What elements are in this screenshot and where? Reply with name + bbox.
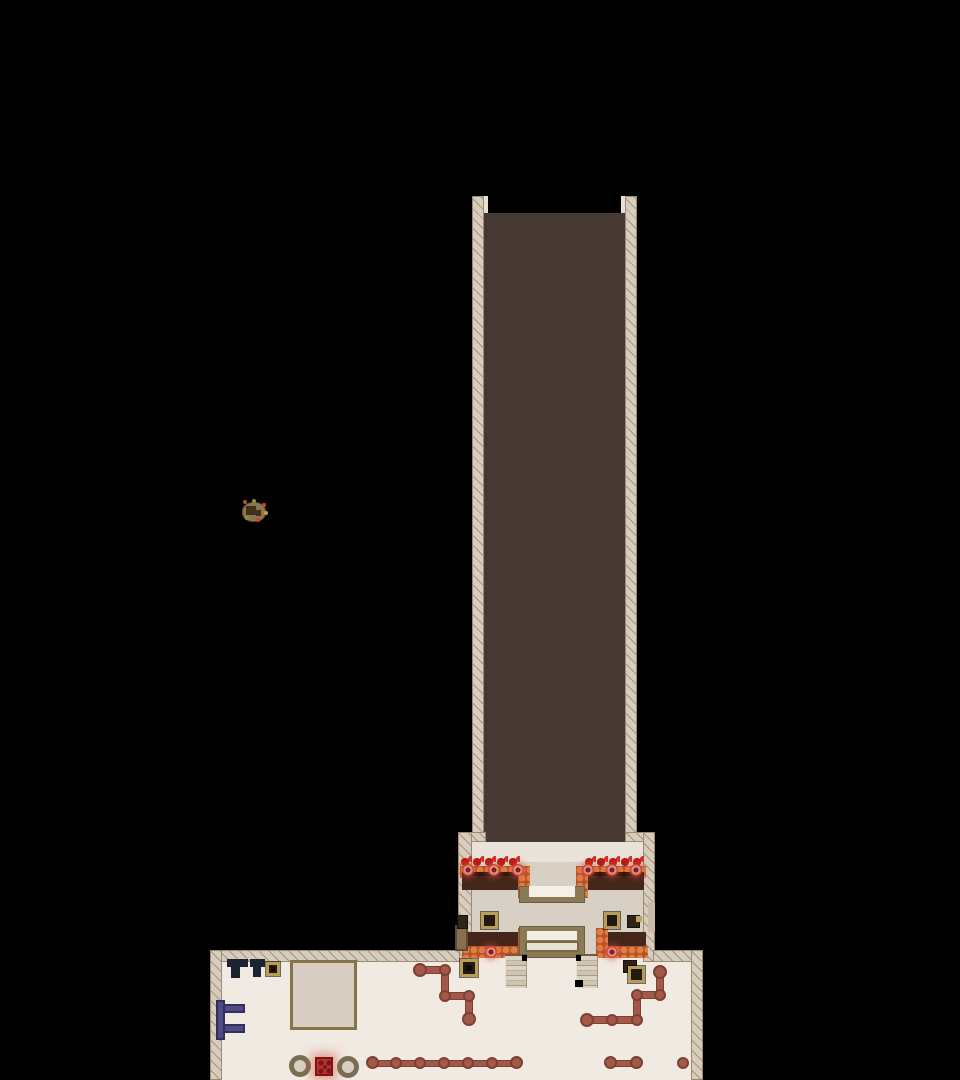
planter-bl-medallion: [485, 946, 497, 958]
garden-islet-box-2: [256, 510, 261, 516]
map-canvas: [0, 0, 960, 1080]
pipe-bottom-joint-4: [462, 1057, 474, 1069]
crate-hall-top-dot: [271, 967, 275, 971]
reception-desk-counter: [525, 941, 579, 952]
planter-tr-medallion-1: [582, 864, 594, 876]
pipe-zigzag-cap-2: [462, 1012, 476, 1026]
pipe-bottom-cap-2: [510, 1056, 523, 1069]
garden-islet-dot-4: [264, 511, 268, 515]
garden-islet-box: [246, 506, 256, 515]
table-1-leg: [231, 967, 240, 978]
stairs-left-shadow: [522, 955, 527, 961]
garden-islet-dot-6: [245, 516, 249, 520]
crate-hall-left-dot: [466, 965, 472, 971]
hall-right-wall: [691, 950, 703, 1080]
pipe-right-joint-1: [606, 1014, 618, 1026]
pot-right[interactable]: [337, 1056, 359, 1078]
floor-platform: [290, 960, 357, 1030]
garden-islet-dot-5: [256, 518, 260, 522]
corridor-left-wall-cap: [484, 196, 488, 213]
pipe-zigzag-joint-2: [439, 990, 451, 1002]
reception-desk-top: [527, 931, 577, 940]
wall-rack-arm-top: [223, 1004, 245, 1013]
table-1-top: [227, 959, 248, 967]
pipe-bottom-joint-3: [438, 1057, 450, 1069]
pipe-right-joint-4: [654, 989, 666, 1001]
pipe-zigzag-joint-1: [439, 964, 451, 976]
crate-lobby-left[interactable]: [481, 912, 498, 929]
corridor-right-wall: [625, 196, 637, 842]
pipe-zigzag-cap-1: [413, 963, 427, 977]
garden-islet-dot-3: [262, 503, 266, 507]
pipe-bottom-cap-1: [366, 1056, 379, 1069]
crate-hall-right[interactable]: [628, 966, 645, 983]
planter-tr-medallion-3: [630, 864, 642, 876]
garden-islet-dot-1: [243, 500, 247, 504]
planter-tl-medallion-1: [462, 864, 474, 876]
pipe-right-joint-2: [631, 1014, 643, 1026]
pipe-short-cap-2: [630, 1056, 643, 1069]
stairs-right-shadow: [576, 955, 581, 961]
pipe-right-cap-2: [653, 965, 667, 979]
lobby-right-wall-niche: [648, 902, 655, 932]
table-2-top: [250, 959, 265, 967]
planter-tr-medallion-2: [606, 864, 618, 876]
crate-lobby-right[interactable]: [604, 912, 620, 929]
planter-tl-medallion-3: [512, 864, 524, 876]
planter-tl-medallion-2: [488, 864, 500, 876]
garden-islet-dot-2: [252, 499, 256, 503]
pipe-zigzag-joint-3: [463, 990, 475, 1002]
corridor-right-wall-cap: [621, 196, 625, 213]
pipe-bottom-joint-2: [414, 1057, 426, 1069]
pipe-short-cap-1: [604, 1056, 617, 1069]
hazard-box[interactable]: [315, 1057, 333, 1076]
planter-br-medallion: [606, 946, 618, 958]
pot-left[interactable]: [289, 1055, 311, 1077]
entry-pedestal-top: [529, 886, 575, 897]
pipe-right-joint-3: [631, 989, 643, 1001]
pipe-bottom-joint-1: [390, 1057, 402, 1069]
pipe-bottom-joint-5: [486, 1057, 498, 1069]
table-2-leg: [253, 967, 261, 977]
stairs-right-shadow-2: [575, 980, 583, 987]
corridor-floor: [484, 213, 625, 842]
pipe-right-cap-1: [580, 1013, 594, 1027]
crate-lobby-left-small[interactable]: [457, 915, 468, 929]
wall-rack-arm-bottom: [223, 1024, 245, 1033]
pipe-end-dot: [677, 1057, 689, 1069]
corridor-left-wall: [472, 196, 484, 842]
crate-lobby-right-flap: [636, 916, 642, 922]
